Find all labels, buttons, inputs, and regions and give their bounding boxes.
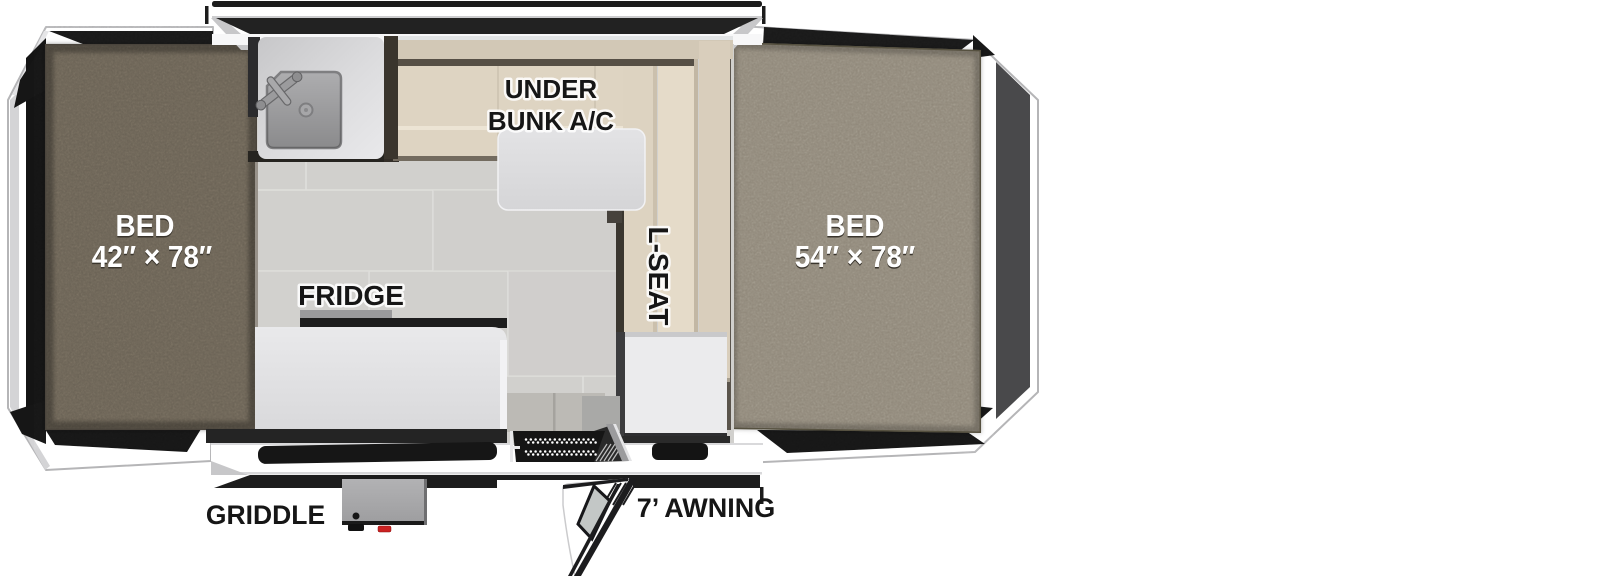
svg-text:54″ × 78″: 54″ × 78″ — [795, 240, 916, 275]
svg-text:L-SEAT: L-SEAT — [643, 226, 674, 325]
svg-text:BED: BED — [826, 209, 885, 244]
svg-text:42″ × 78″: 42″ × 78″ — [92, 240, 213, 275]
svg-text:GRIDDLE: GRIDDLE — [206, 500, 325, 530]
svg-text:7’ AWNING: 7’ AWNING — [637, 493, 776, 523]
svg-text:BED: BED — [116, 209, 175, 244]
svg-text:FRIDGE: FRIDGE — [298, 280, 404, 311]
svg-text:UNDER: UNDER — [505, 74, 598, 104]
svg-text:BUNK A/C: BUNK A/C — [488, 106, 614, 136]
